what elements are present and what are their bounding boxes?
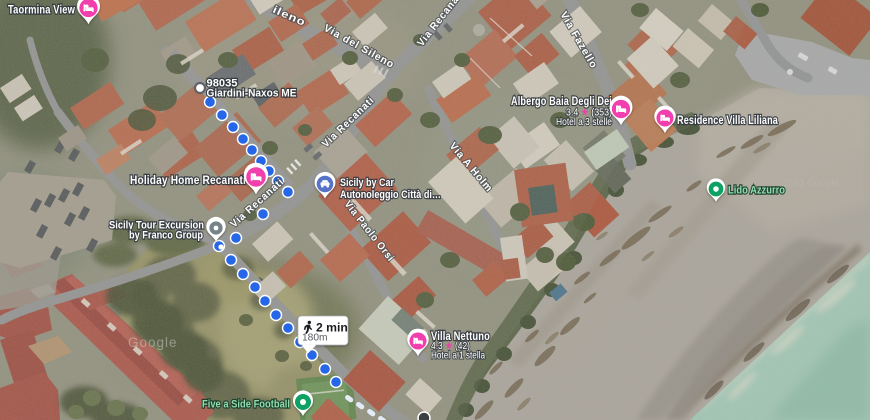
svg-text:Giardini-Naxos ME: Giardini-Naxos ME — [207, 88, 297, 100]
svg-text:Five a Side Football: Five a Side Football — [202, 399, 290, 411]
svg-text:Holiday Home Recanati: Holiday Home Recanati — [130, 173, 246, 187]
svg-text:Sicily by Car: Sicily by Car — [340, 177, 395, 189]
svg-text:2023 Google: 2023 Google — [782, 178, 840, 189]
svg-text:Autonoleggio Città di…: Autonoleggio Città di… — [340, 189, 441, 201]
svg-text:Residence Villa Liliana: Residence Villa Liliana — [677, 113, 778, 127]
svg-text:by Franco Group: by Franco Group — [129, 230, 203, 242]
svg-text:Google: Google — [128, 335, 178, 350]
svg-text:Hotel a 3 stelle: Hotel a 3 stelle — [556, 116, 612, 128]
svg-text:Hotel a 1 stella: Hotel a 1 stella — [431, 350, 485, 362]
svg-text:Lido Azzurro: Lido Azzurro — [728, 185, 785, 197]
svg-text:180m: 180m — [302, 333, 327, 344]
svg-text:Taormina View: Taormina View — [8, 3, 75, 17]
